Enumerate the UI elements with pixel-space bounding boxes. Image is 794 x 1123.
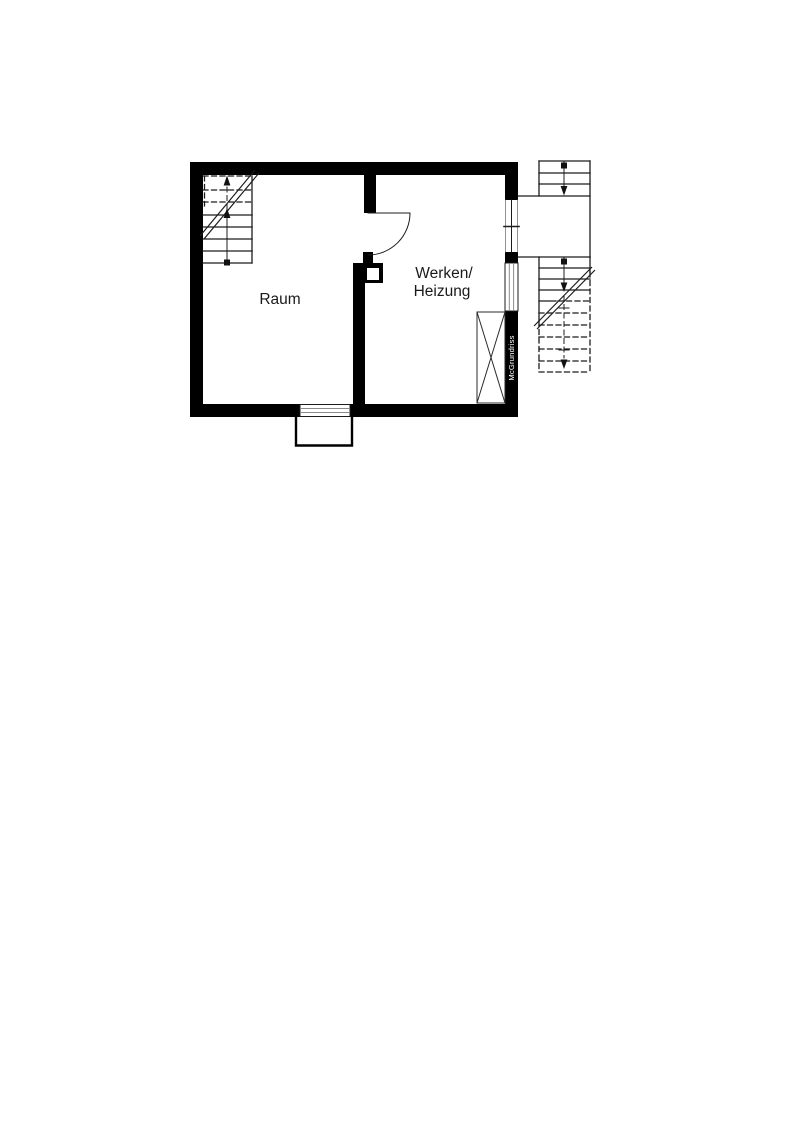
- stair-break-line: [200, 170, 259, 239]
- window-bottom-frame: [300, 405, 350, 417]
- shaft-cross-icon: [477, 312, 505, 403]
- room-label-werken-line2: Heizung: [414, 283, 471, 300]
- light-well: [296, 417, 352, 446]
- stair-up-arrow-top-icon: [224, 176, 231, 186]
- wall-right-stub: [505, 252, 518, 263]
- watermark-text: McGrundriss: [507, 335, 516, 380]
- floorplan-drawing: Raum Werken/ Heizung McGrundriss: [0, 0, 794, 1123]
- wall-interior-lower: [353, 283, 365, 404]
- wall-left: [190, 162, 203, 417]
- wall-interior-upper: [364, 175, 376, 213]
- window-right: [505, 263, 518, 311]
- stair-up-arrow-icon: [224, 208, 231, 218]
- room-label-werken-line1: Werken/: [415, 265, 473, 282]
- interior-door: [368, 213, 410, 255]
- window-bottom: [300, 405, 350, 417]
- window-right-frame: [505, 263, 518, 311]
- exterior-stair-lower: [534, 257, 595, 372]
- wall-right-top: [505, 162, 518, 200]
- door-swing-arc: [368, 213, 410, 255]
- pillar-stub: [363, 252, 373, 263]
- wall-bottom-left: [190, 404, 300, 417]
- pillar-flue-hole: [367, 268, 379, 280]
- interior-staircase: [200, 170, 259, 266]
- wall-bottom-right: [350, 404, 518, 417]
- room-label-raum: Raum: [259, 291, 300, 308]
- exterior-door-opening: [504, 200, 519, 252]
- wall-top: [190, 162, 518, 175]
- exterior-stair-upper: [518, 161, 590, 257]
- ext-stair-upper-start-marker: [561, 163, 567, 169]
- shaft-box: [477, 312, 505, 403]
- stair-start-marker: [224, 260, 230, 266]
- ext-stair-upper-down-arrow-icon: [561, 186, 568, 196]
- ext-stair-lower-bottom-arrow-icon: [561, 360, 568, 370]
- floorplan-canvas: Raum Werken/ Heizung McGrundriss: [0, 0, 794, 1123]
